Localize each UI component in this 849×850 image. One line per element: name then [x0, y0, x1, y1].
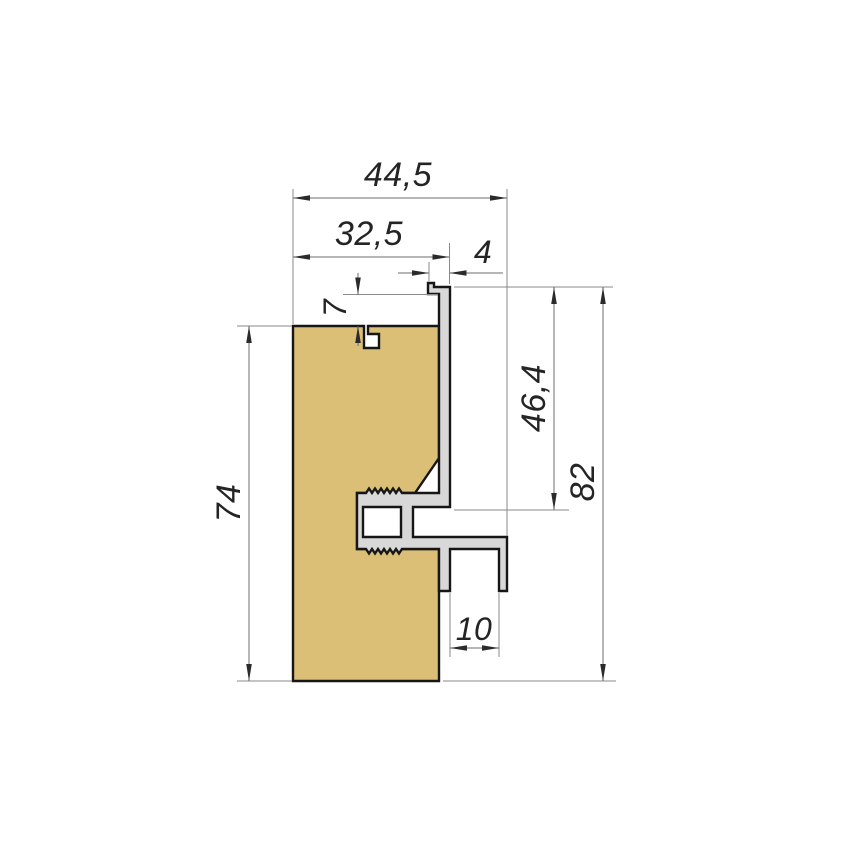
dim-upper-width: 32,5: [293, 215, 450, 260]
arrowhead-right: [490, 195, 507, 201]
arrowhead-left: [293, 195, 310, 201]
dim-overall-height: 82: [564, 287, 606, 681]
dim-label-channel-gap: 10: [456, 611, 493, 647]
dim-lip-width: 4: [398, 234, 503, 276]
arrowhead-right: [433, 254, 450, 260]
dim-channel-gap: 10: [450, 611, 499, 651]
dim-web-height: 46,4: [515, 287, 557, 510]
arrowhead-left: [412, 270, 429, 276]
arrowhead-down: [551, 493, 557, 510]
dim-label-overall-width: 44,5: [364, 156, 432, 194]
arrowhead-up: [246, 326, 252, 343]
dim-label-web-height: 46,4: [515, 364, 553, 432]
dim-label-overall-height: 82: [564, 463, 602, 502]
dim-label-upper-width: 32,5: [335, 215, 403, 253]
arrowhead-down: [355, 278, 361, 295]
dim-label-lip-width: 4: [474, 234, 492, 270]
dim-wood-height: 74: [210, 326, 252, 681]
dim-overall-width: 44,5: [293, 156, 507, 201]
arrowhead-down: [246, 664, 252, 681]
arrowhead-up: [600, 287, 606, 304]
arrowhead-down: [600, 664, 606, 681]
arrowhead-up: [551, 287, 557, 304]
arrowhead-left: [293, 254, 310, 260]
arrowhead-right: [450, 270, 467, 276]
profile-drawing: 44,5 32,5 4 7 74 46,4: [0, 0, 849, 850]
dim-label-wood-height: 74: [210, 484, 248, 523]
drawing-canvas: 44,5 32,5 4 7 74 46,4: [0, 0, 849, 850]
dim-label-panel-gap: 7: [317, 298, 353, 317]
